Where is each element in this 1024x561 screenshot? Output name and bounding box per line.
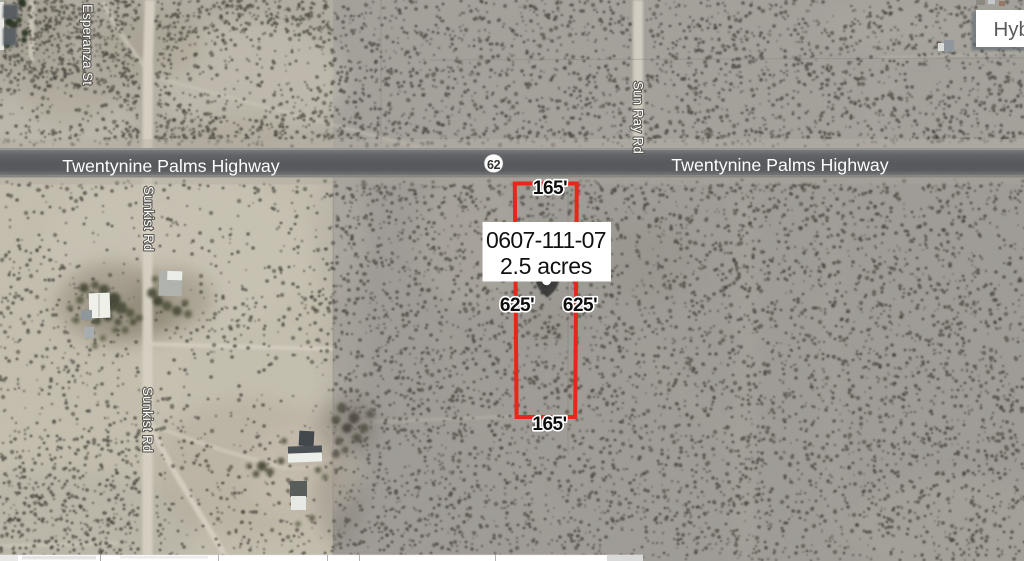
svg-text:Sunkist Rd: Sunkist Rd [140,387,155,452]
svg-text:62: 62 [487,158,501,172]
svg-text:Sunkist Rd: Sunkist Rd [141,186,156,251]
svg-text:Twentynine Palms Highway: Twentynine Palms Highway [62,156,280,176]
svg-text:Twentynine Palms Highway: Twentynine Palms Highway [671,155,889,175]
svg-text:0607-111-07: 0607-111-07 [486,227,606,253]
svg-text:625': 625' [563,295,597,316]
svg-text:Sun Ray Rd: Sun Ray Rd [631,81,646,154]
svg-text:Esperanza St: Esperanza St [80,4,95,85]
svg-text:165': 165' [533,178,567,199]
svg-text:Hybrid: Hybrid [994,18,1024,41]
svg-text:165': 165' [532,414,566,435]
svg-text:625': 625' [500,295,534,316]
svg-text:2.5 acres: 2.5 acres [500,253,592,279]
